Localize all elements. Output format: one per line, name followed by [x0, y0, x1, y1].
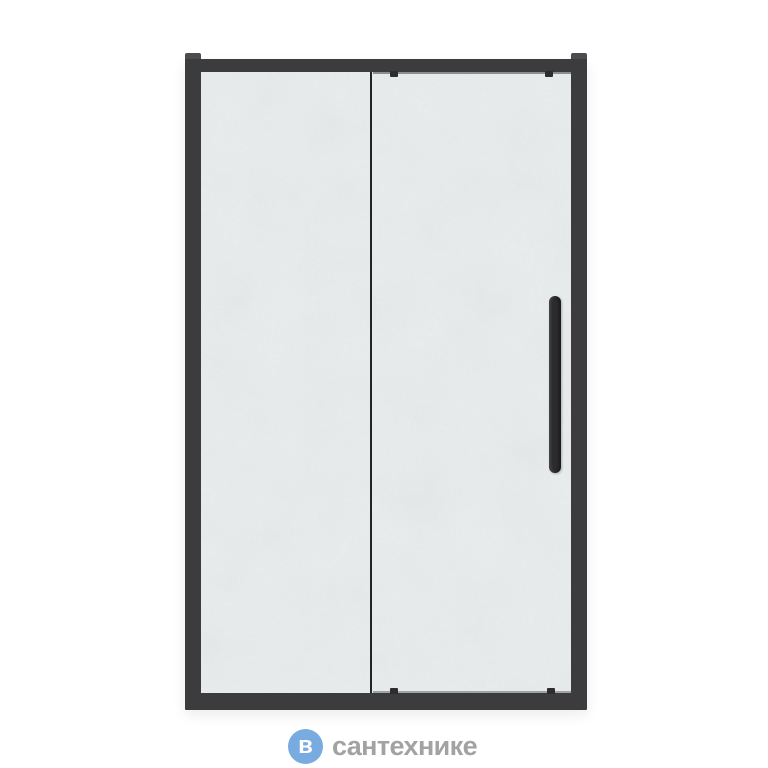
roller-bracket-bottom-left	[390, 688, 398, 694]
watermark: в сантехнике	[288, 729, 477, 764]
roller-bracket-top-left	[390, 71, 398, 77]
watermark-text: сантехнике	[332, 729, 477, 764]
roller-bracket-bottom-right	[547, 688, 555, 694]
frosted-glass-texture	[201, 72, 571, 693]
glass-panel	[201, 72, 571, 693]
panel-divider	[370, 72, 372, 693]
door-handle	[549, 296, 561, 473]
roller-bracket-top-right	[545, 71, 553, 77]
watermark-logo-icon: в	[288, 729, 323, 764]
product-photo: в сантехнике	[0, 0, 768, 768]
sliding-panel-top-edge	[373, 72, 571, 74]
shower-door	[185, 53, 587, 710]
door-frame	[185, 59, 587, 710]
sliding-panel-bottom-edge	[373, 691, 571, 693]
